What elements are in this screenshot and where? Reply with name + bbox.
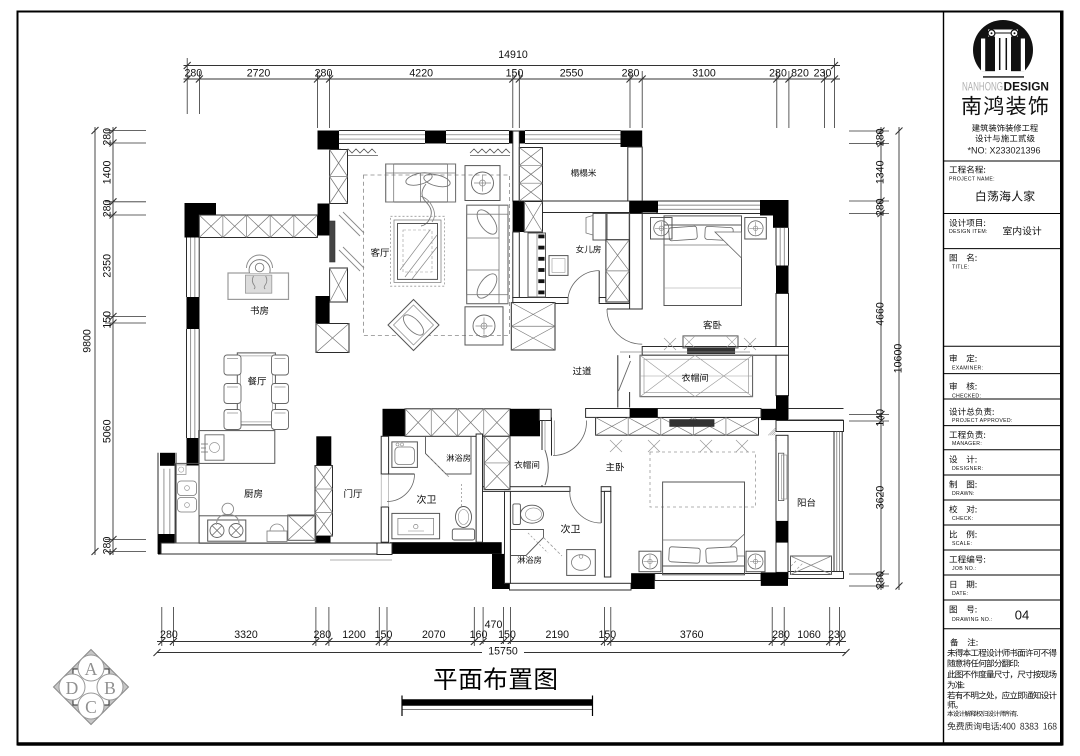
- svg-text:SCALE:: SCALE:: [952, 541, 972, 547]
- svg-text:15750: 15750: [488, 646, 518, 658]
- svg-text:280: 280: [875, 128, 887, 146]
- svg-text:280: 280: [102, 199, 114, 217]
- svg-text:280: 280: [160, 629, 178, 641]
- svg-text:280: 280: [102, 537, 114, 555]
- svg-text:280: 280: [875, 198, 887, 216]
- svg-text:1340: 1340: [875, 160, 887, 184]
- svg-text:3620: 3620: [875, 486, 887, 510]
- svg-text:DESIGNER:: DESIGNER:: [952, 466, 983, 472]
- svg-text:DRAWN:: DRAWN:: [952, 491, 975, 497]
- svg-text:150: 150: [102, 311, 114, 329]
- svg-text:280: 280: [875, 571, 887, 589]
- svg-text:3760: 3760: [680, 629, 704, 641]
- svg-text:2350: 2350: [102, 254, 114, 278]
- svg-text:280: 280: [315, 68, 333, 80]
- svg-text:DRAWING NO.:: DRAWING NO.:: [952, 617, 993, 623]
- svg-text:14910: 14910: [498, 49, 528, 61]
- svg-text:820: 820: [791, 68, 809, 80]
- svg-text:3320: 3320: [234, 629, 258, 641]
- svg-text:230: 230: [828, 629, 846, 641]
- svg-text:1200: 1200: [342, 629, 366, 641]
- svg-text:5060: 5060: [102, 419, 114, 443]
- svg-text:470: 470: [485, 619, 503, 631]
- svg-text:230: 230: [814, 68, 832, 80]
- svg-text:150: 150: [598, 629, 616, 641]
- svg-text:9800: 9800: [82, 329, 94, 353]
- svg-text:280: 280: [772, 629, 790, 641]
- svg-text:NANHONG: NANHONG: [962, 80, 1003, 94]
- svg-text:TITLE:: TITLE:: [952, 265, 969, 271]
- svg-text:280: 280: [622, 68, 640, 80]
- svg-text:280: 280: [313, 629, 331, 641]
- svg-text:2190: 2190: [546, 629, 570, 641]
- svg-text:2070: 2070: [422, 629, 446, 641]
- svg-text:PROJECT APPROVED:: PROJECT APPROVED:: [952, 418, 1013, 424]
- svg-text:4660: 4660: [875, 302, 887, 326]
- svg-text:150: 150: [375, 629, 393, 641]
- svg-text:2550: 2550: [560, 68, 584, 80]
- svg-text:CHECK:: CHECK:: [952, 516, 973, 522]
- svg-text:A: A: [85, 659, 98, 679]
- svg-text:B: B: [104, 678, 116, 698]
- svg-text:3100: 3100: [692, 68, 716, 80]
- svg-text:10600: 10600: [893, 344, 905, 374]
- svg-text:140: 140: [875, 409, 887, 427]
- svg-text:04: 04: [1015, 608, 1029, 623]
- svg-text:280: 280: [184, 68, 202, 80]
- svg-text:4220: 4220: [409, 68, 433, 80]
- svg-text:C: C: [85, 697, 97, 717]
- svg-text:DESIGN: DESIGN: [1004, 82, 1050, 94]
- svg-text:2720: 2720: [247, 68, 271, 80]
- svg-text:DESIGN ITEM:: DESIGN ITEM:: [949, 229, 988, 235]
- svg-text:D: D: [66, 678, 79, 698]
- svg-text:DATE:: DATE:: [952, 591, 968, 597]
- svg-text:PROJECT NAME:: PROJECT NAME:: [949, 177, 995, 183]
- svg-text:*NO: X233021396: *NO: X233021396: [967, 146, 1040, 156]
- svg-text:280: 280: [102, 128, 114, 146]
- svg-text:280: 280: [769, 68, 787, 80]
- svg-text:MANAGER:: MANAGER:: [952, 441, 982, 447]
- svg-text:CHECKED:: CHECKED:: [952, 393, 981, 399]
- svg-text:150: 150: [506, 68, 524, 80]
- svg-text:JOB NO.:: JOB NO.:: [952, 566, 977, 572]
- svg-text:1060: 1060: [797, 629, 821, 641]
- svg-text:1400: 1400: [102, 161, 114, 185]
- svg-text:EXAMINER:: EXAMINER:: [952, 366, 983, 372]
